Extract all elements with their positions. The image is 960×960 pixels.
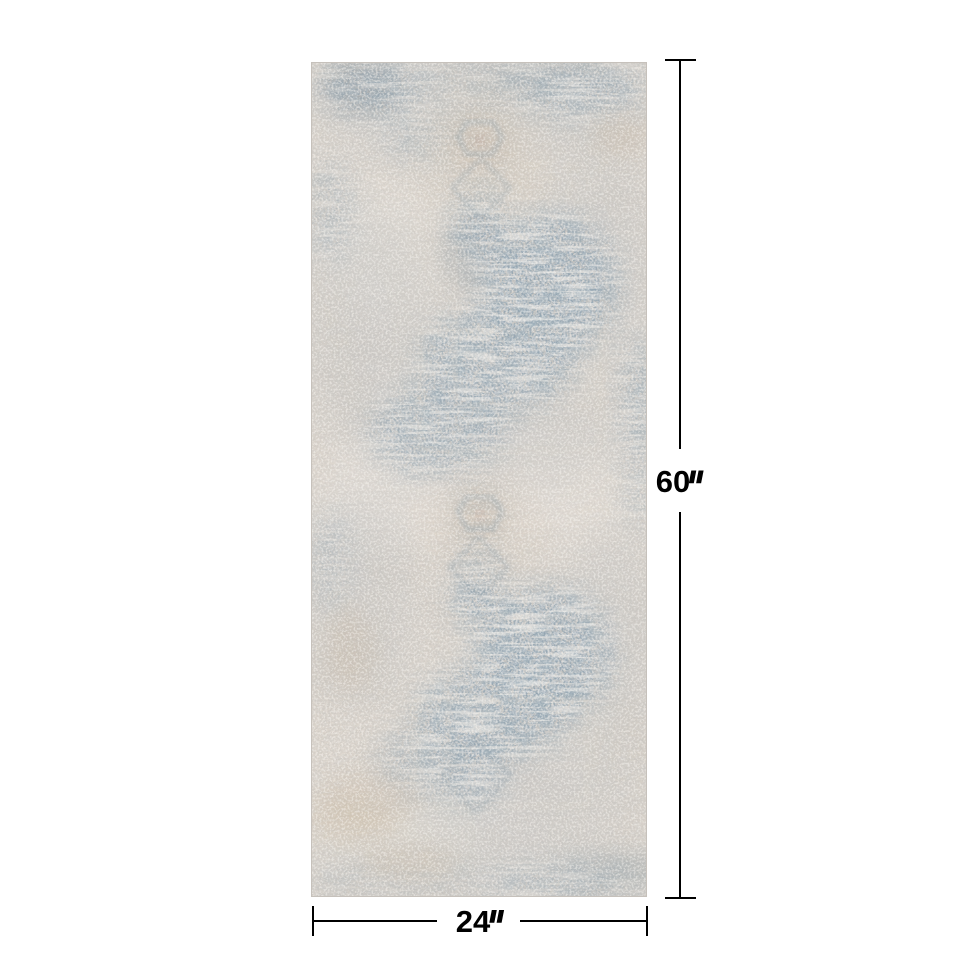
svg-text:60: 60 [656, 464, 690, 499]
svg-text:24: 24 [456, 904, 491, 939]
